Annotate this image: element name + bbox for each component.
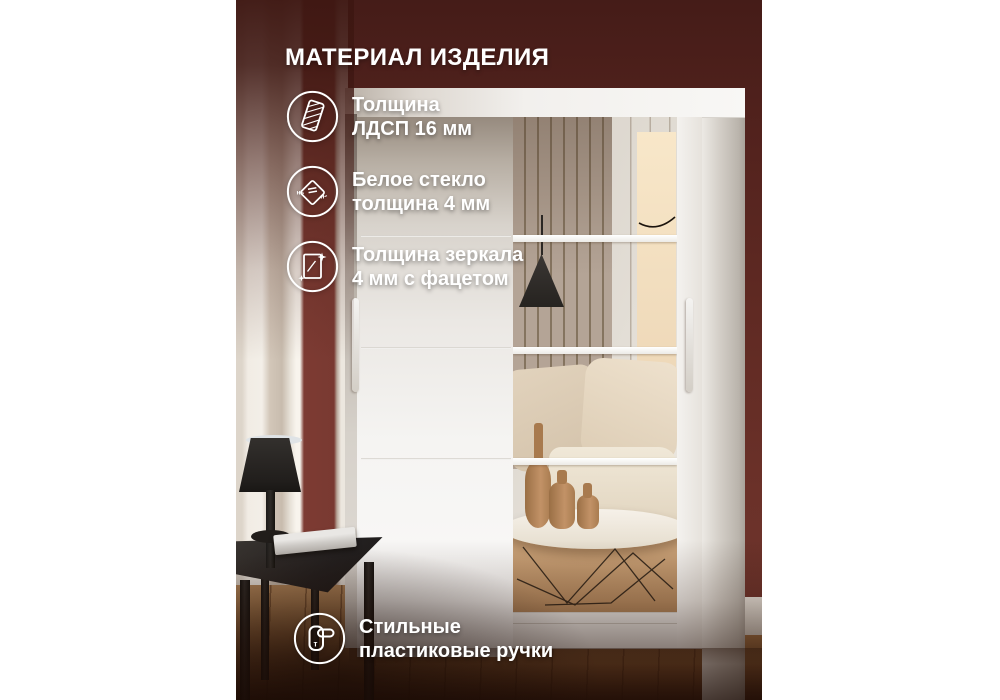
room-photo: МАТЕРИАЛ ИЗДЕЛИЯ Толщина ЛДСП 16 мм (236, 0, 762, 700)
feature-mirror: Толщина зеркала 4 мм с фацетом (286, 240, 523, 293)
handle-icon: т (293, 612, 346, 665)
feature-text: Стильные пластиковые ручки (359, 615, 553, 663)
chipboard-icon (286, 90, 339, 143)
feature-handles: т Стильные пластиковые ручки (293, 612, 553, 665)
feature-ldsp: Толщина ЛДСП 16 мм (286, 90, 523, 143)
product-card: МАТЕРИАЛ ИЗДЕЛИЯ Толщина ЛДСП 16 мм (0, 0, 1000, 700)
mirror-divider-strip (513, 235, 677, 242)
glass-icon: н н (286, 165, 339, 218)
mirror-reflection-floor-lamp-arc (637, 205, 677, 235)
glass-dim-label: н (321, 194, 325, 201)
mirror-divider-strip (513, 347, 677, 354)
wardrobe-mirror-door (513, 117, 677, 612)
table-lamp (239, 438, 301, 492)
handle-letter: т (314, 640, 318, 649)
feature-text: Белое стекло толщина 4 мм (352, 168, 490, 216)
door-groove (361, 347, 511, 349)
mirror-reflection-vase (577, 495, 599, 529)
feature-text: Толщина зеркала 4 мм с фацетом (352, 243, 523, 291)
page-title: МАТЕРИАЛ ИЗДЕЛИЯ (285, 44, 549, 72)
mirror-reflection-vase-neck (583, 483, 592, 498)
wardrobe-right-handle (686, 298, 693, 392)
mirror-reflection-vase (549, 482, 575, 529)
mirror-reflection-vase (525, 460, 551, 528)
feature-glass: н н Белое стекло толщина 4 мм (286, 165, 523, 218)
glass-dim-label: н (297, 190, 301, 197)
feature-list: Толщина ЛДСП 16 мм н н Белое стекло (286, 90, 523, 293)
mirror-reflection-vase-neck (557, 470, 567, 484)
mirror-icon (286, 240, 339, 293)
mirror-reflection-lamp-glow (637, 132, 676, 377)
feature-text: Толщина ЛДСП 16 мм (352, 93, 472, 141)
mirror-divider-strip (513, 458, 677, 465)
